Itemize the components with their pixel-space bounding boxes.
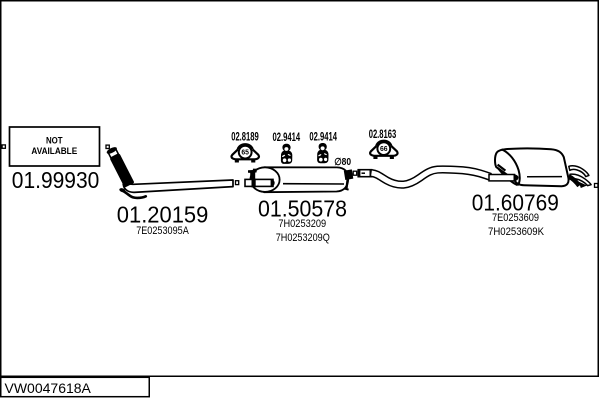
svg-text:02.8189: 02.8189 [231, 129, 259, 143]
svg-text:01.99930: 01.99930 [12, 167, 100, 193]
svg-text:7H0253609K: 7H0253609K [488, 226, 545, 238]
svg-text:01.20159: 01.20159 [117, 202, 209, 228]
svg-text:∅80: ∅80 [334, 157, 351, 168]
svg-text:VW0047618A: VW0047618A [5, 380, 92, 396]
svg-text:02.9414: 02.9414 [309, 130, 337, 144]
svg-text:02.9414: 02.9414 [273, 130, 301, 144]
svg-text:02.8163: 02.8163 [369, 127, 397, 141]
svg-text:7E0253095A: 7E0253095A [136, 225, 189, 237]
svg-text:7H0253209Q: 7H0253209Q [276, 232, 330, 244]
svg-text:AVAILABLE: AVAILABLE [31, 146, 77, 156]
svg-text:7H0253209: 7H0253209 [278, 218, 326, 230]
svg-text:7E0253609: 7E0253609 [492, 212, 539, 224]
svg-text:NOT: NOT [46, 136, 63, 146]
svg-text:66: 66 [380, 146, 388, 153]
svg-text:65: 65 [241, 150, 249, 157]
